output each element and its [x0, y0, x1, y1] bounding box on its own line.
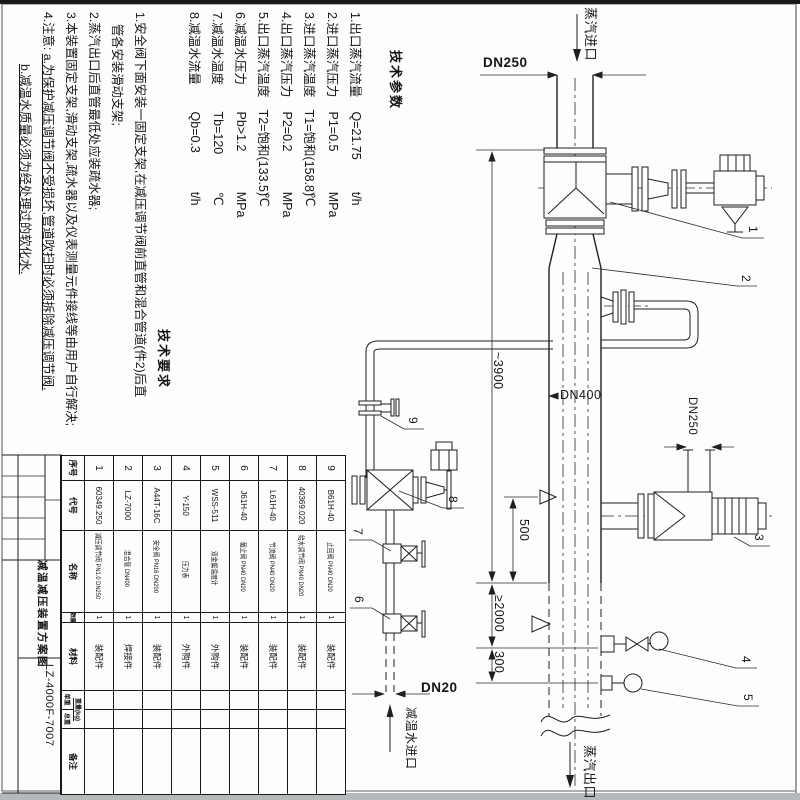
bom-row-1: 160349.250减压调节阀 PN1.0 DN2501装配件 — [84, 456, 113, 794]
safety-valve — [601, 447, 766, 540]
drawing-number: LZ-4000F-7007 — [43, 664, 55, 746]
param-row: 1.出口蒸汽流量Q=21.75t/h — [345, 0, 368, 240]
bom-row-2: 2LZ-7000混合管 DN4001焊接件 — [113, 456, 142, 794]
globe-valve — [383, 611, 425, 637]
callout-3: 3 — [752, 534, 766, 541]
dn250-top-label: DN250 — [483, 55, 528, 70]
throttle-valve — [383, 541, 425, 567]
pressure-gauge — [601, 632, 668, 652]
inlet-pipe — [480, 14, 646, 148]
dn20-label: DN20 — [421, 680, 458, 695]
pressure-reducing-valve — [544, 148, 764, 234]
callout-2: 2 — [739, 275, 753, 282]
dn250-vent-label: DN250 — [686, 397, 698, 435]
mixing-pipe — [541, 234, 610, 788]
dim-500-label: 500 — [517, 519, 531, 541]
callout-6: 6 — [352, 596, 366, 603]
water-control-valve — [352, 442, 457, 510]
tech-notes-block: 技术要求 1.安全阀下面安装一固定支架,在减压调节阀前直管和混合管道(件2)后直… — [12, 4, 174, 459]
dn400-label: DN400 — [560, 388, 601, 402]
note-line: 3.本装置固定支架,滑动支架,疏水器以及仪表测量元件接线等由用户自行解决; — [58, 4, 81, 459]
param-row: 2.进口蒸汽压力P1=0.5MPa — [322, 0, 345, 240]
bom-table: 9B61H-40止回阀 PN40 DN201装配件 840369.020给水调节… — [60, 455, 346, 795]
tech-params-title: 技术参数 — [384, 50, 406, 240]
safety-valve-spring — [712, 498, 766, 534]
tech-notes-title: 技术要求 — [150, 329, 174, 459]
steam-inlet-label: 蒸汽进口 — [582, 7, 601, 61]
callout-1: 1 — [746, 226, 760, 233]
drawing-title: 减温减压装置方案图 — [35, 560, 50, 668]
callout-7: 7 — [351, 528, 365, 535]
param-row: 4.出口蒸汽压力P2=0.2MPa — [276, 0, 299, 240]
bom-row-7: 7L61H-40节流阀 PN40 DN201装配件 — [258, 456, 287, 794]
param-row: 8.减温水流量Qb=0.3t/h — [184, 0, 207, 240]
dim-2000-label: ≥2000 — [492, 595, 506, 632]
param-row: 3.进口蒸汽温度T1=饱和(158.8)℃ — [299, 0, 322, 240]
nozzle-mark-2 — [532, 616, 550, 632]
param-row: 6.减温水压力Pb>1.2MPa — [230, 0, 253, 240]
nozzle-mark-1 — [540, 490, 556, 504]
water-inlet-arrow — [387, 704, 394, 717]
bom-row-9: 9B61H-40止回阀 PN40 DN201装配件 — [316, 456, 345, 794]
valve-actuator — [714, 155, 764, 232]
bom-row-6: 6J61H-40截止阀 PN40 DN201装配件 — [229, 456, 258, 794]
note-line: b.减温水质量必须为经处理过的软化水. — [12, 4, 35, 459]
bom-row-8: 840369.020给水调节阀 PN40 DN201装配件 — [287, 456, 316, 794]
bom-row-3: 3A44T-16C安全阀 PN16 DN2001装配件 — [142, 456, 171, 794]
bom-row-4: 4Y-150压力表1外购件 — [171, 456, 200, 794]
callout-8: 8 — [446, 496, 460, 503]
callout-9: 9 — [406, 417, 420, 424]
steam-outlet-arrow — [566, 775, 574, 788]
param-row: 5.出口蒸汽温度T2=饱和(133.5)℃ — [253, 0, 276, 240]
note-line: 管各安装滑动支架; — [104, 4, 127, 459]
param-row: 7.减温水温度Tb=120℃ — [207, 0, 230, 240]
check-valve — [359, 399, 399, 416]
note-line: 1.安全阀下面安装一固定支架,在减压调节阀前直管和混合管道(件2)后直 — [127, 4, 150, 459]
steam-outlet-label: 蒸汽出口 — [581, 745, 600, 799]
spray-water-head — [601, 290, 698, 348]
dim-3900-label: ~3900 — [491, 352, 505, 390]
steam-inlet-arrow — [573, 49, 581, 62]
note-line: 4.注意: a.为保护减压调节阀不受损坏,管道吹扫时必须拆除减压调节阀. — [35, 4, 58, 459]
callout-4: 4 — [739, 656, 753, 663]
water-inlet-label: 减温水进口 — [403, 707, 420, 770]
bom-header: 序号 代号 名称 数量 材料 重量(kg) 单重总重 备注 — [61, 456, 84, 794]
callout-5: 5 — [741, 694, 755, 701]
dim-300-label: 300 — [492, 651, 506, 673]
bom-row-5: 5WSS-511双金属温度计1外购件 — [200, 456, 229, 794]
tech-params-block: 技术参数 1.出口蒸汽流量Q=21.75t/h 2.进口蒸汽压力P1=0.5MP… — [184, 0, 406, 240]
thermometer — [601, 674, 642, 692]
pipe-break — [541, 715, 610, 722]
note-line: 2.蒸汽出口后直管最低处应装疏水器; — [81, 4, 104, 459]
drawing-sheet: 技术参数 1.出口蒸汽流量Q=21.75t/h 2.进口蒸汽压力P1=0.5MP… — [0, 0, 800, 800]
